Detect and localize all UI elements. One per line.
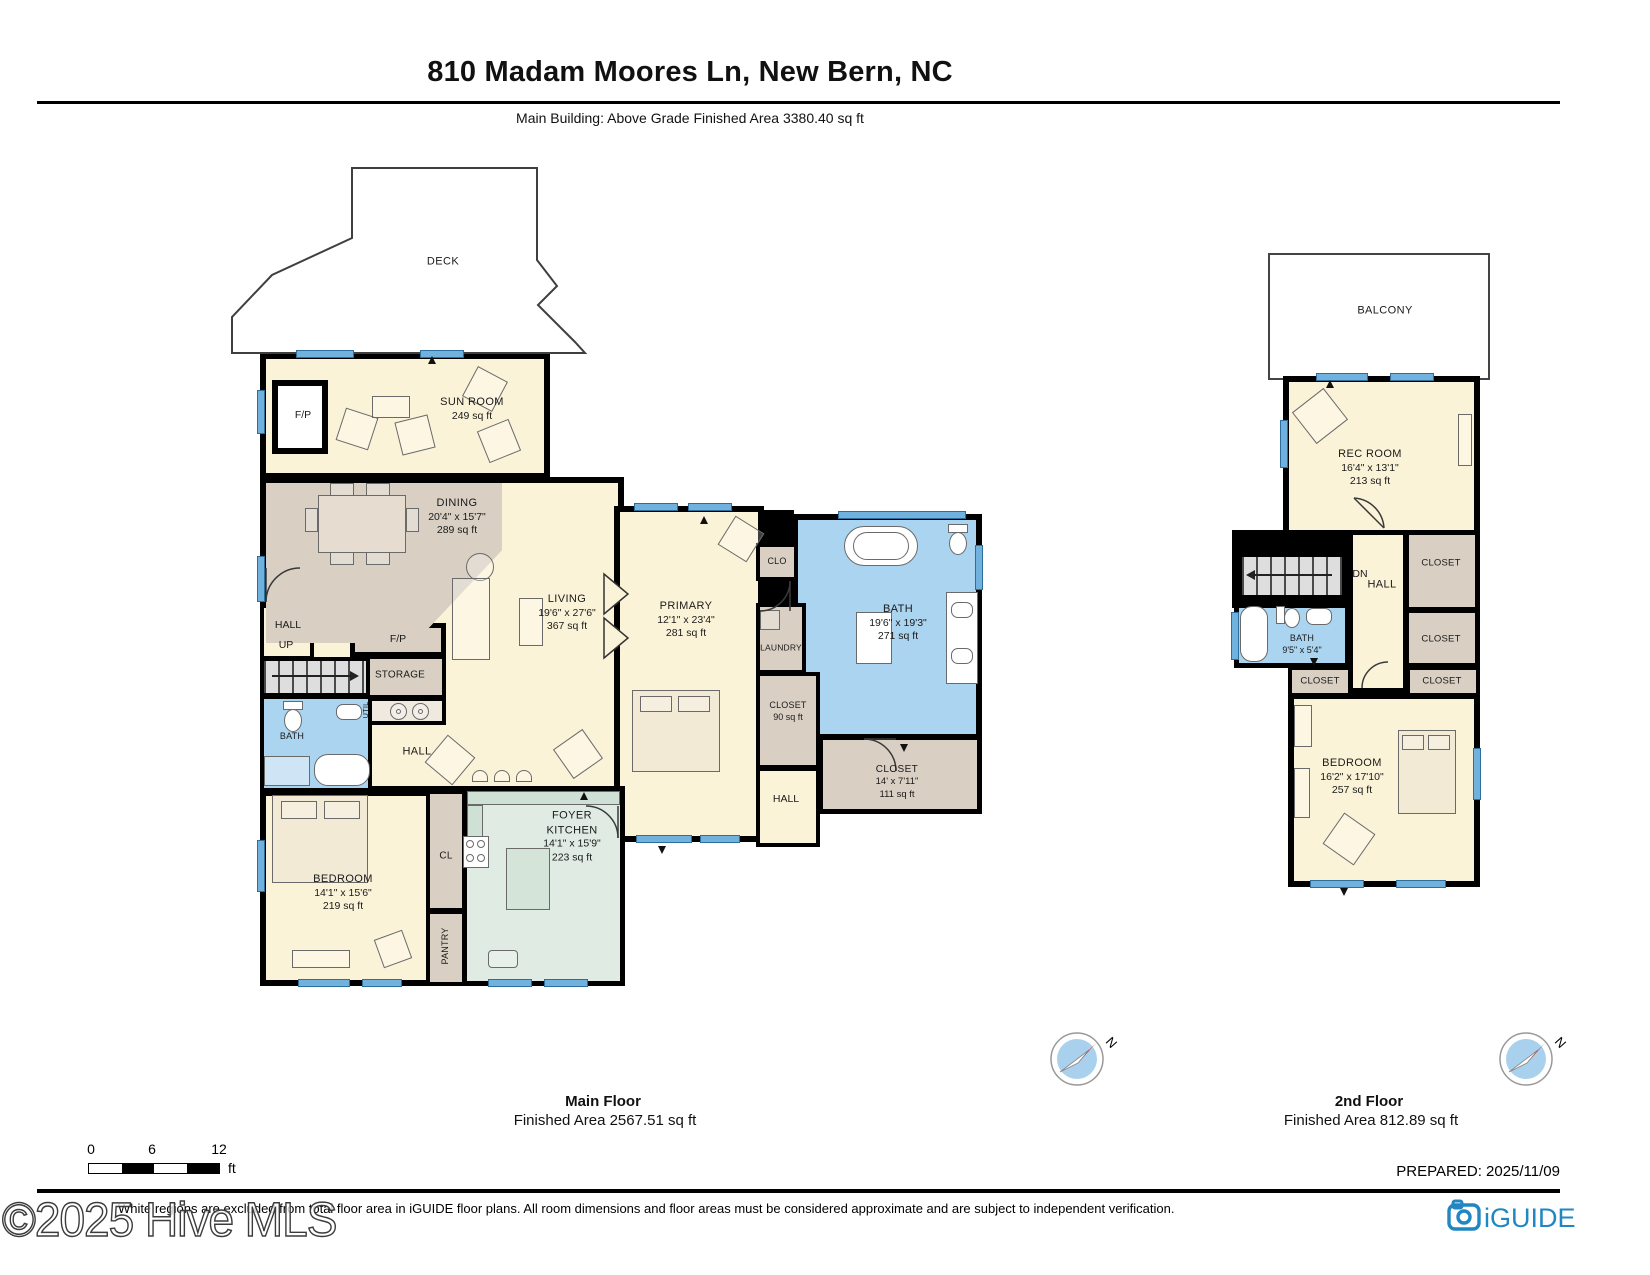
closet111-area: 111 sq ft	[876, 789, 919, 802]
window-marker	[636, 835, 692, 843]
pillow-icon	[1402, 735, 1424, 750]
dining-chair-icon	[366, 552, 390, 565]
living-name: LIVING	[538, 592, 596, 607]
window-marker	[257, 840, 265, 892]
sink-icon	[1306, 608, 1332, 625]
room-label-primary-bath: BATH 19'6" x 19'3" 271 sq ft	[869, 602, 927, 644]
window-marker	[1396, 880, 1446, 888]
stairs-down-direction-line	[1252, 574, 1332, 576]
window-marker	[1280, 420, 1288, 468]
scale-tick-0: 0	[87, 1141, 95, 1157]
second-floor-caption: 2nd Floor	[1335, 1093, 1403, 1110]
primary-bath-name: BATH	[869, 602, 927, 617]
upper-hall-name: HALL	[1367, 578, 1396, 593]
iguide-logo-text: iGUIDE	[1484, 1203, 1576, 1233]
laundry-name: LAUNDRY	[760, 642, 802, 653]
upper-bedroom-name: BEDROOM	[1320, 756, 1383, 771]
window-marker	[362, 979, 402, 987]
clo-name: CLO	[767, 556, 786, 568]
rec-dims: 16'4" x 13'1"	[1338, 461, 1402, 475]
scale-segment	[122, 1164, 155, 1173]
scale-bar	[88, 1163, 220, 1174]
room-label-bath-main: BATH	[280, 731, 304, 743]
stairs-up-arrow-icon	[350, 671, 359, 681]
room-label-closet-bl: CLOSET	[1300, 676, 1339, 689]
window-marker	[1390, 373, 1434, 381]
window-marker	[1310, 880, 1364, 888]
toilet-icon	[1284, 608, 1300, 628]
hall-center-name: HALL	[402, 745, 431, 760]
window-marker	[838, 511, 966, 519]
dn-label: DN	[1352, 568, 1367, 582]
bathtub-inner-icon	[853, 532, 909, 560]
door-swing-icon	[264, 566, 302, 604]
room-label-upper-hall: HALL	[1367, 578, 1396, 593]
dining-chair-icon	[366, 483, 390, 496]
stairs-up-direction-line	[272, 675, 352, 677]
kitchen-counter-icon	[467, 791, 620, 805]
washer-dial-icon	[396, 709, 401, 714]
closet90-name: CLOSET	[769, 700, 806, 712]
primary-name: PRIMARY	[657, 599, 715, 614]
sun-room-name: SUN ROOM	[440, 395, 504, 410]
window-marker	[257, 556, 265, 602]
door-arrow-icon	[900, 744, 908, 752]
window-marker	[420, 350, 464, 358]
bar-stool-icon	[472, 770, 488, 782]
room-label-cl: CL	[439, 849, 452, 862]
toilet-icon	[949, 532, 967, 555]
header-rule	[37, 101, 1560, 104]
shower-icon	[264, 756, 310, 786]
svg-text:N: N	[1103, 1034, 1120, 1051]
window-marker	[544, 979, 588, 987]
balcony-name: BALCONY	[1357, 304, 1412, 319]
burner-icon	[466, 854, 474, 862]
room-label-hall-center: HALL	[402, 745, 431, 760]
room-label-fp-sun: F/P	[295, 409, 311, 423]
primary-area: 281 sq ft	[657, 627, 715, 641]
dining-area: 289 sq ft	[428, 524, 486, 538]
dining-name: DINING	[428, 496, 486, 511]
room-label-living: LIVING 19'6" x 27'6" 367 sq ft	[538, 592, 596, 634]
window-marker	[298, 979, 350, 987]
compass-icon: N	[1047, 1026, 1121, 1092]
pillow-icon	[678, 696, 710, 712]
pillow-icon	[324, 801, 360, 819]
closet-top-right	[1404, 530, 1480, 612]
room-label-up: UP	[279, 639, 294, 653]
dining-dims: 20'4" x 15'7"	[428, 510, 486, 524]
closet-br-name: CLOSET	[1422, 676, 1461, 689]
dining-table-icon	[318, 495, 406, 553]
room-label-clo: CLO	[767, 556, 786, 568]
door-swing-icon	[1360, 660, 1390, 690]
pillow-icon	[281, 801, 317, 819]
storage-name: STORAGE	[375, 668, 425, 681]
kitchen-name: KITCHEN	[543, 823, 601, 838]
svg-text:N: N	[1552, 1034, 1569, 1051]
bedroom1-name: BEDROOM	[313, 872, 373, 887]
deck-name: DECK	[427, 255, 459, 270]
cl-name: CL	[439, 849, 452, 862]
main-floor-caption: Main Floor	[565, 1093, 641, 1110]
door-arrow-icon	[1310, 658, 1318, 666]
bedroom1-dims: 14'1" x 15'6"	[313, 886, 373, 900]
burner-icon	[477, 854, 485, 862]
room-label-hall-up: HALL	[275, 619, 301, 633]
upper-bath-name: BATH	[1282, 633, 1321, 645]
door-arrow-icon	[1326, 380, 1334, 388]
rec-area: 213 sq ft	[1338, 475, 1402, 489]
rec-name: REC ROOM	[1338, 447, 1402, 462]
window-marker	[700, 835, 740, 843]
page-subtitle: Main Building: Above Grade Finished Area…	[0, 110, 1380, 126]
dining-chair-icon	[330, 552, 354, 565]
room-label-closet90: CLOSET 90 sq ft	[769, 700, 806, 724]
upper-bath-dims: 9'5" x 5'4"	[1282, 645, 1321, 657]
room-label-foyer-kitchen: FOYER KITCHEN 14'1" x 15'9" 223 sq ft	[543, 809, 601, 866]
room-label-dn: DN	[1352, 568, 1367, 582]
door-arrow-icon	[1340, 888, 1348, 896]
room-label-upper-bath: BATH 9'5" x 5'4"	[1282, 633, 1321, 657]
door-arrow-icon	[580, 792, 588, 800]
bar-stool-icon	[516, 770, 532, 782]
room-label-sun-room: SUN ROOM 249 sq ft	[440, 395, 504, 423]
window-marker	[1316, 373, 1368, 381]
closet111-dims: 14' x 7'11"	[876, 776, 919, 789]
hall-bath-name: HALL	[773, 793, 799, 807]
table-icon	[372, 396, 410, 418]
room-label-primary: PRIMARY 12'1" x 23'4" 281 sq ft	[657, 599, 715, 641]
sofa-icon	[452, 578, 490, 660]
dresser-icon	[292, 950, 350, 968]
room-label-bedroom1: BEDROOM 14'1" x 15'6" 219 sq ft	[313, 872, 373, 914]
scale-segment	[154, 1164, 187, 1173]
dresser-icon	[1294, 705, 1312, 747]
room-label-pantry: PANTRY	[440, 928, 452, 965]
bath-main-name: BATH	[280, 731, 304, 743]
dining-chair-icon	[305, 508, 318, 532]
pillow-icon	[1428, 735, 1450, 750]
hall-bath-area	[756, 767, 820, 847]
kitchen-area: 223 sq ft	[543, 852, 601, 866]
cabinet-icon	[1458, 414, 1472, 466]
door-arrow-icon	[700, 516, 708, 524]
closet-top-name: CLOSET	[1421, 558, 1460, 571]
sink-icon	[951, 648, 973, 664]
fp-sun-name: F/P	[295, 409, 311, 423]
dining-chair-icon	[330, 483, 354, 496]
side-table-icon	[466, 553, 494, 581]
scale-unit: ft	[228, 1160, 236, 1176]
window-marker	[634, 503, 678, 511]
room-label-closet111: CLOSET 14' x 7'11" 111 sq ft	[876, 763, 919, 801]
prepared-date: PREPARED: 2025/11/09	[1260, 1163, 1560, 1180]
deck-outline	[210, 150, 610, 365]
floorplan-page: 810 Madam Moores Ln, New Bern, NC Main B…	[0, 0, 1650, 1275]
foyer-name: FOYER	[543, 809, 601, 824]
room-label-balcony: BALCONY	[1357, 304, 1412, 319]
compass-icon: N	[1496, 1026, 1570, 1092]
room-label-laundry: LAUNDRY	[760, 642, 802, 653]
main-floor-area-caption: Finished Area 2567.51 sq ft	[514, 1112, 697, 1129]
up-label: UP	[279, 639, 294, 653]
room-label-storage: STORAGE	[375, 668, 425, 681]
primary-bath-area: 271 sq ft	[869, 630, 927, 644]
upper-bedroom-area: 257 sq ft	[1320, 784, 1383, 798]
window-marker	[488, 979, 532, 987]
window-marker	[1473, 748, 1481, 800]
page-title: 810 Madam Moores Ln, New Bern, NC	[0, 56, 1380, 89]
window-marker	[257, 390, 265, 434]
dining-chair-icon	[406, 508, 419, 532]
room-label-dining: DINING 20'4" x 15'7" 289 sq ft	[428, 496, 486, 538]
laundry-sink-icon	[760, 610, 780, 630]
bedroom1-area: 219 sq ft	[313, 900, 373, 914]
dryer-dial-icon	[418, 709, 423, 714]
closet111-name: CLOSET	[876, 763, 919, 776]
util-name: UTIL	[361, 701, 371, 718]
kitchen-sink-icon	[488, 950, 518, 968]
iguide-logo: iGUIDE	[1446, 1198, 1586, 1234]
dresser-icon	[1294, 768, 1310, 818]
sun-room-area: 249 sq ft	[440, 409, 504, 423]
bar-stool-icon	[494, 770, 510, 782]
room-label-util: UTIL	[361, 701, 371, 718]
closet90-area: 90 sq ft	[769, 712, 806, 724]
window-marker	[1231, 612, 1239, 660]
primary-bath-dims: 19'6" x 19'3"	[869, 616, 927, 630]
window-marker	[296, 350, 354, 358]
hall-up-name: HALL	[275, 619, 301, 633]
room-label-closet-top: CLOSET	[1421, 558, 1460, 571]
bathtub-icon	[1240, 606, 1268, 662]
room-label-hall-bath: HALL	[773, 793, 799, 807]
toilet-icon	[284, 709, 302, 732]
double-door-icon	[602, 572, 632, 662]
burner-icon	[477, 840, 485, 848]
pillow-icon	[640, 696, 672, 712]
sink-icon	[951, 602, 973, 618]
second-floor-area-caption: Finished Area 812.89 sq ft	[1284, 1112, 1458, 1129]
scale-tick-6: 6	[148, 1141, 156, 1157]
pantry-name: PANTRY	[440, 928, 452, 965]
scale-segment	[187, 1164, 220, 1173]
scale-tick-12: 12	[211, 1141, 227, 1157]
room-label-upper-bedroom: BEDROOM 16'2" x 17'10" 257 sq ft	[1320, 756, 1383, 798]
scale-segment	[89, 1164, 122, 1173]
closet-bl-name: CLOSET	[1300, 676, 1339, 689]
door-swing-icon	[758, 579, 792, 613]
primary-dims: 12'1" x 23'4"	[657, 613, 715, 627]
upper-bedroom-dims: 16'2" x 17'10"	[1320, 770, 1383, 784]
living-area: 367 sq ft	[538, 620, 596, 634]
stairs-down-arrow-icon	[1246, 570, 1255, 580]
living-dims: 19'6" x 27'6"	[538, 606, 596, 620]
bathtub-icon	[314, 754, 370, 786]
sink-icon	[336, 704, 362, 720]
room-label-fp-living: F/P	[390, 633, 406, 647]
door-arrow-icon	[428, 356, 436, 364]
burner-icon	[466, 840, 474, 848]
window-marker	[688, 503, 732, 511]
closet-mid-name: CLOSET	[1421, 634, 1460, 647]
window-marker	[975, 545, 983, 590]
kitchen-dims: 14'1" x 15'9"	[543, 838, 601, 852]
room-label-closet-mid: CLOSET	[1421, 634, 1460, 647]
door-swing-icon	[1352, 496, 1386, 530]
room-label-deck: DECK	[427, 255, 459, 270]
door-arrow-icon	[658, 846, 666, 854]
room-label-rec: REC ROOM 16'4" x 13'1" 213 sq ft	[1338, 447, 1402, 489]
mls-watermark: ©2025 Hive MLS	[2, 1191, 336, 1248]
room-label-closet-br: CLOSET	[1422, 676, 1461, 689]
fp-living-name: F/P	[390, 633, 406, 647]
